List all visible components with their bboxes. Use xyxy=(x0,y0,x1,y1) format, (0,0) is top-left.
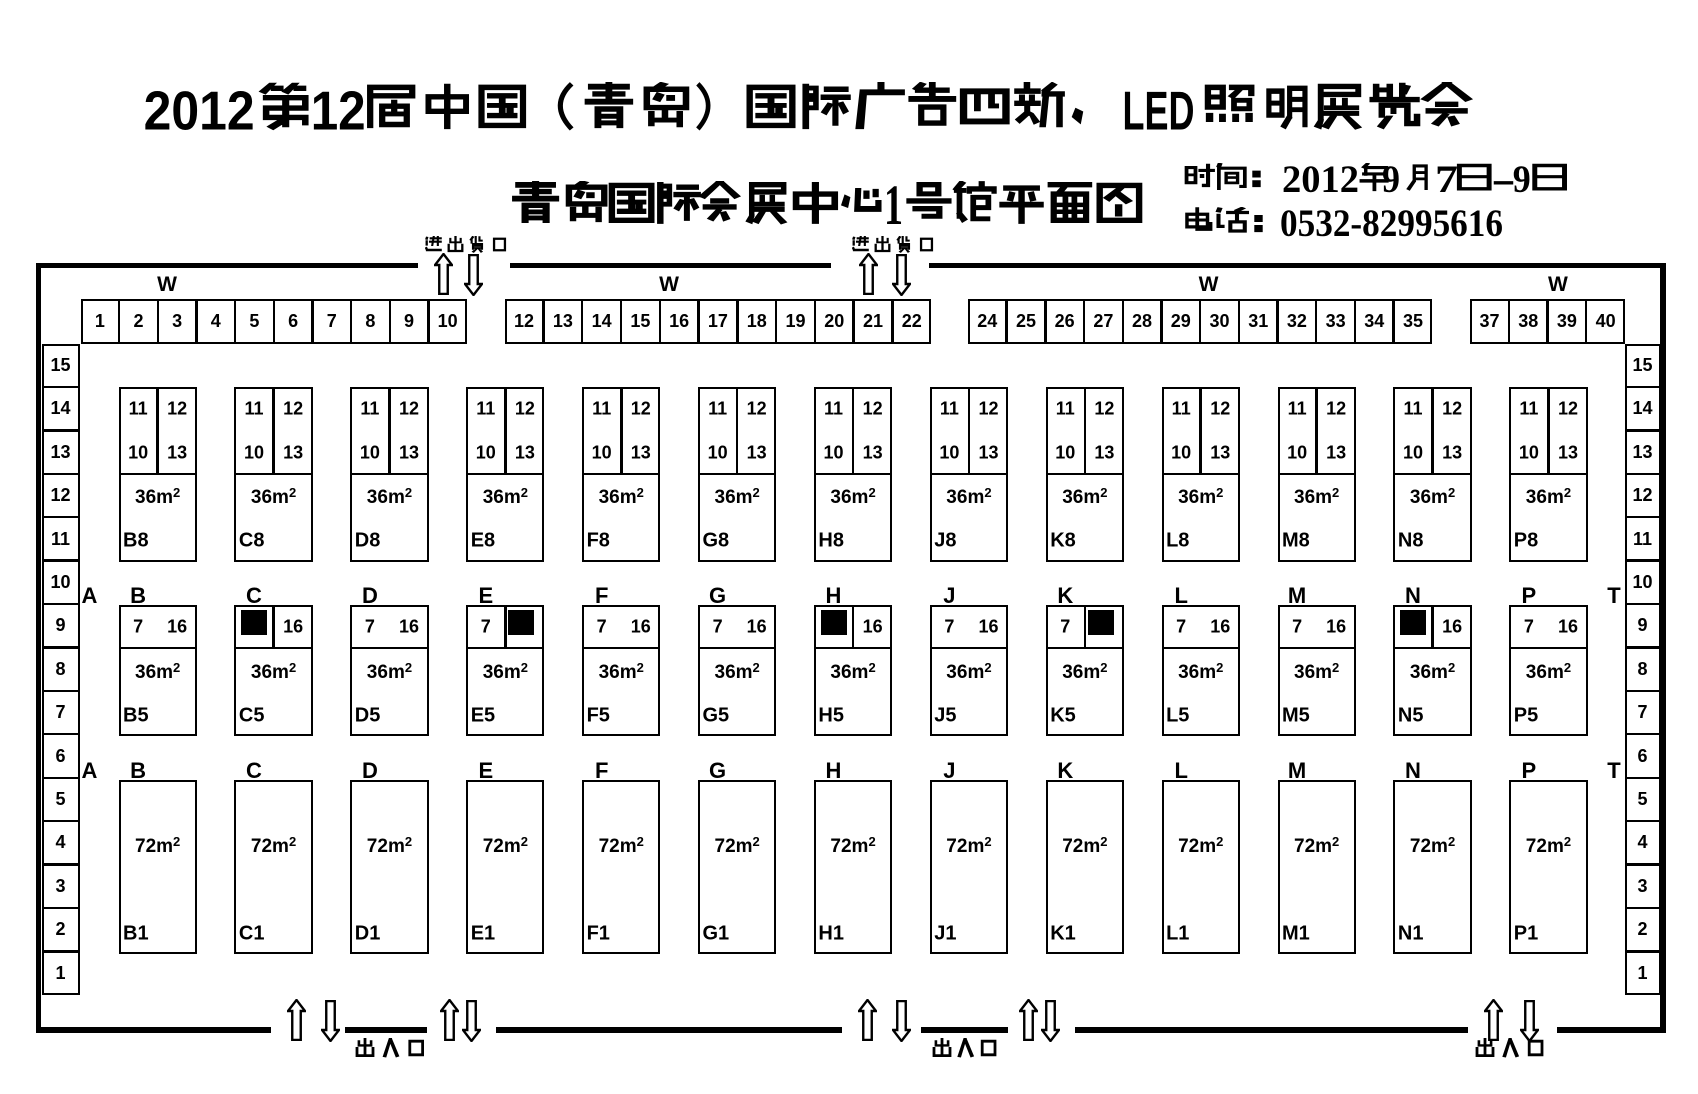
svg-text:0532-82995616: 0532-82995616 xyxy=(1280,207,1503,238)
svg-text:7: 7 xyxy=(1435,163,1458,193)
svg-text:2012: 2012 xyxy=(144,82,255,131)
svg-text:LED: LED xyxy=(1123,82,1195,131)
svg-text:9: 9 xyxy=(1513,163,1531,193)
svg-text:2012: 2012 xyxy=(1282,163,1359,193)
svg-text:1: 1 xyxy=(884,181,903,225)
svg-text:12: 12 xyxy=(311,82,366,131)
svg-text:9: 9 xyxy=(1382,163,1400,193)
